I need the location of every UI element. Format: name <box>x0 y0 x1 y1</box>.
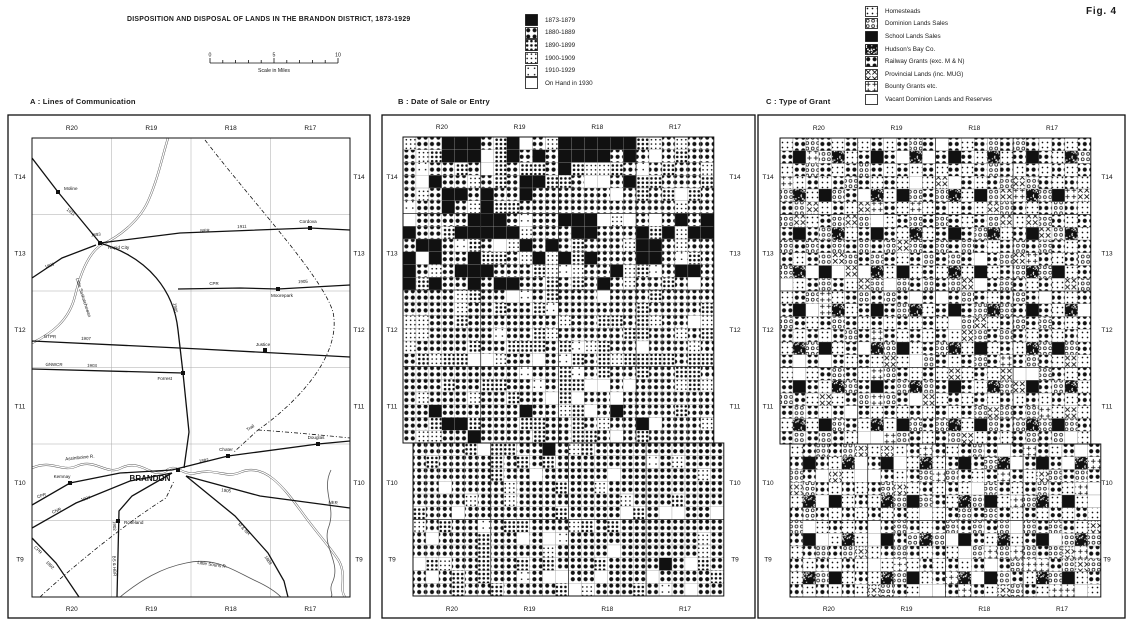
railway-label: NER <box>328 500 338 506</box>
river-name-label: Assiniboine R. <box>65 453 95 461</box>
railway-cpr-moorepark <box>178 285 350 289</box>
railway-gnwcr <box>32 369 183 373</box>
river-little-souris <box>120 561 281 597</box>
township-label: T10 <box>353 480 365 487</box>
town-name-label: BRANDON <box>130 474 171 483</box>
railway-label: 1890 <box>44 261 55 269</box>
railway-bshbr <box>117 473 172 597</box>
township-label: T12 <box>762 327 774 334</box>
range-label: R17 <box>1046 125 1058 132</box>
township-label: T14 <box>762 174 774 181</box>
range-label: R20 <box>446 606 458 613</box>
range-label: R18 <box>601 606 613 613</box>
town-marker <box>226 454 230 458</box>
railway-label: 1905 <box>221 487 232 493</box>
river-se-creek <box>327 470 335 597</box>
township-label: T11 <box>730 404 741 411</box>
town-marker <box>276 287 280 291</box>
range-label: R20 <box>813 125 825 132</box>
township-label: T9 <box>731 557 739 564</box>
town-name-label: Moline <box>64 186 78 191</box>
range-label: R19 <box>145 125 157 132</box>
range-label: R17 <box>679 606 691 613</box>
township-label: T10 <box>386 480 398 487</box>
range-label: R20 <box>66 606 78 613</box>
town-name-label: Douglas <box>308 435 326 440</box>
township-label: T12 <box>14 327 26 334</box>
township-label: T11 <box>15 404 26 411</box>
railway-label: CPR <box>209 281 218 286</box>
town-name-label: Moorepark <box>271 293 294 298</box>
township-label: T10 <box>729 480 741 487</box>
range-label: R19 <box>891 125 903 132</box>
river-name-label: Little Souris R. <box>197 560 227 569</box>
township-label: T12 <box>386 327 398 334</box>
range-label: R18 <box>591 124 603 131</box>
township-label: T9 <box>16 557 24 564</box>
range-label: R18 <box>968 125 980 132</box>
township-label: T9 <box>355 557 363 564</box>
town-marker <box>308 226 312 230</box>
range-label: R20 <box>66 125 78 132</box>
town-name-label: Cordova <box>299 219 317 224</box>
township-label: T13 <box>14 251 26 258</box>
township-label: T12 <box>1101 327 1113 334</box>
railway-label: 1903 <box>87 363 97 368</box>
town-marker <box>98 241 102 245</box>
town-name-label: Rapid City <box>108 245 130 250</box>
township-label: T13 <box>353 251 365 258</box>
township-label: T10 <box>762 480 774 487</box>
panel-c-lower-grid <box>790 444 1101 597</box>
township-label: T11 <box>387 404 398 411</box>
railway-ner-1911 <box>100 228 350 243</box>
railway-label: 1889 <box>263 555 273 566</box>
town-marker <box>316 442 320 446</box>
trail-trail-sw <box>40 481 174 597</box>
railway-label: GNWCR <box>45 362 62 367</box>
railway-label: BS & HBR <box>111 556 117 577</box>
railway-label: GTPR <box>44 334 56 339</box>
town-marker <box>176 468 180 472</box>
railway-label: NER <box>200 228 209 233</box>
panel-b-upper-grid <box>403 137 714 443</box>
railway-label: 1893 <box>91 232 102 238</box>
railway-label: CPR <box>36 492 46 500</box>
township-label: T10 <box>14 480 26 487</box>
township-label: T13 <box>729 251 741 258</box>
railway-ner-se <box>186 476 350 508</box>
railway-label: CPR <box>33 545 43 555</box>
railway-label: 1907 <box>81 336 91 341</box>
railway-cpr-east <box>172 441 350 470</box>
town-name-label: Chater <box>219 447 233 452</box>
railway-label: M & NR <box>237 522 251 537</box>
township-label: T11 <box>354 404 365 411</box>
township-label: T9 <box>764 557 772 564</box>
town-marker <box>263 348 267 352</box>
figure-panels: Little SaskatchewanAssiniboine R.Little … <box>0 0 1128 628</box>
township-label: T13 <box>1101 251 1113 258</box>
railway-label: 1905 <box>172 303 178 314</box>
town-name-label: Justice <box>256 342 271 347</box>
railway-label: 1911 <box>237 224 247 229</box>
panel-b-lower-grid <box>413 443 724 596</box>
range-label: R17 <box>304 606 316 613</box>
railway-label: 1907 <box>80 495 91 503</box>
township-label: T14 <box>729 174 741 181</box>
range-label: R19 <box>514 124 526 131</box>
range-label: R20 <box>823 606 835 613</box>
range-label: R20 <box>436 124 448 131</box>
panel-c-upper-grid <box>780 138 1091 444</box>
township-label: T13 <box>762 251 774 258</box>
trail-label: Trail <box>245 423 255 432</box>
range-label: R18 <box>225 125 237 132</box>
railway-label: 1905 <box>298 279 308 284</box>
township-label: T12 <box>729 327 741 334</box>
town-marker <box>56 190 60 194</box>
railway-label: 1882 <box>199 457 210 463</box>
township-label: T14 <box>386 174 398 181</box>
range-label: R17 <box>304 125 316 132</box>
railway-label: 1911 <box>66 207 77 217</box>
township-label: T14 <box>353 174 365 181</box>
township-label: T12 <box>353 327 365 334</box>
panel-b: R20R20R19R19R18R18R17R17T14T14T13T13T12T… <box>382 115 755 618</box>
river-little-saskatchewan <box>32 138 168 343</box>
trail-trail-ne <box>205 140 334 452</box>
range-label: R17 <box>669 124 681 131</box>
town-marker <box>116 519 120 523</box>
figure-page: DISPOSITION AND DISPOSAL OF LANDS IN THE… <box>0 0 1128 628</box>
town-marker <box>181 371 185 375</box>
panel-a: Little SaskatchewanAssiniboine R.Little … <box>8 115 370 618</box>
town-name-label: Roseland <box>124 520 144 525</box>
township-label: T13 <box>386 251 398 258</box>
town-name-label: Forrest <box>157 376 172 381</box>
township-label: T14 <box>14 174 26 181</box>
range-label: R17 <box>1056 606 1068 613</box>
trail-trail-east <box>258 430 350 438</box>
range-label: R19 <box>524 606 536 613</box>
railway-mnr-se <box>186 476 288 597</box>
river-name-label: Little Saskatchewan <box>75 277 93 318</box>
town-marker <box>68 481 72 485</box>
river-assiniboine <box>32 464 345 597</box>
township-label: T9 <box>1103 557 1111 564</box>
railway-line-1911-nw <box>32 158 100 243</box>
panel-c: R20R20R19R19R18R18R17R17T14T14T13T13T12T… <box>758 115 1125 618</box>
township-label: T11 <box>1102 404 1113 411</box>
township-label: T9 <box>388 557 396 564</box>
range-label: R18 <box>978 606 990 613</box>
township-label: T14 <box>1101 174 1113 181</box>
range-label: R19 <box>901 606 913 613</box>
range-label: R19 <box>145 606 157 613</box>
range-label: R18 <box>225 606 237 613</box>
township-label: T11 <box>763 404 774 411</box>
town-name-label: Kemnay <box>54 474 72 479</box>
township-label: T10 <box>1101 480 1113 487</box>
railway-ns-line <box>100 243 189 468</box>
